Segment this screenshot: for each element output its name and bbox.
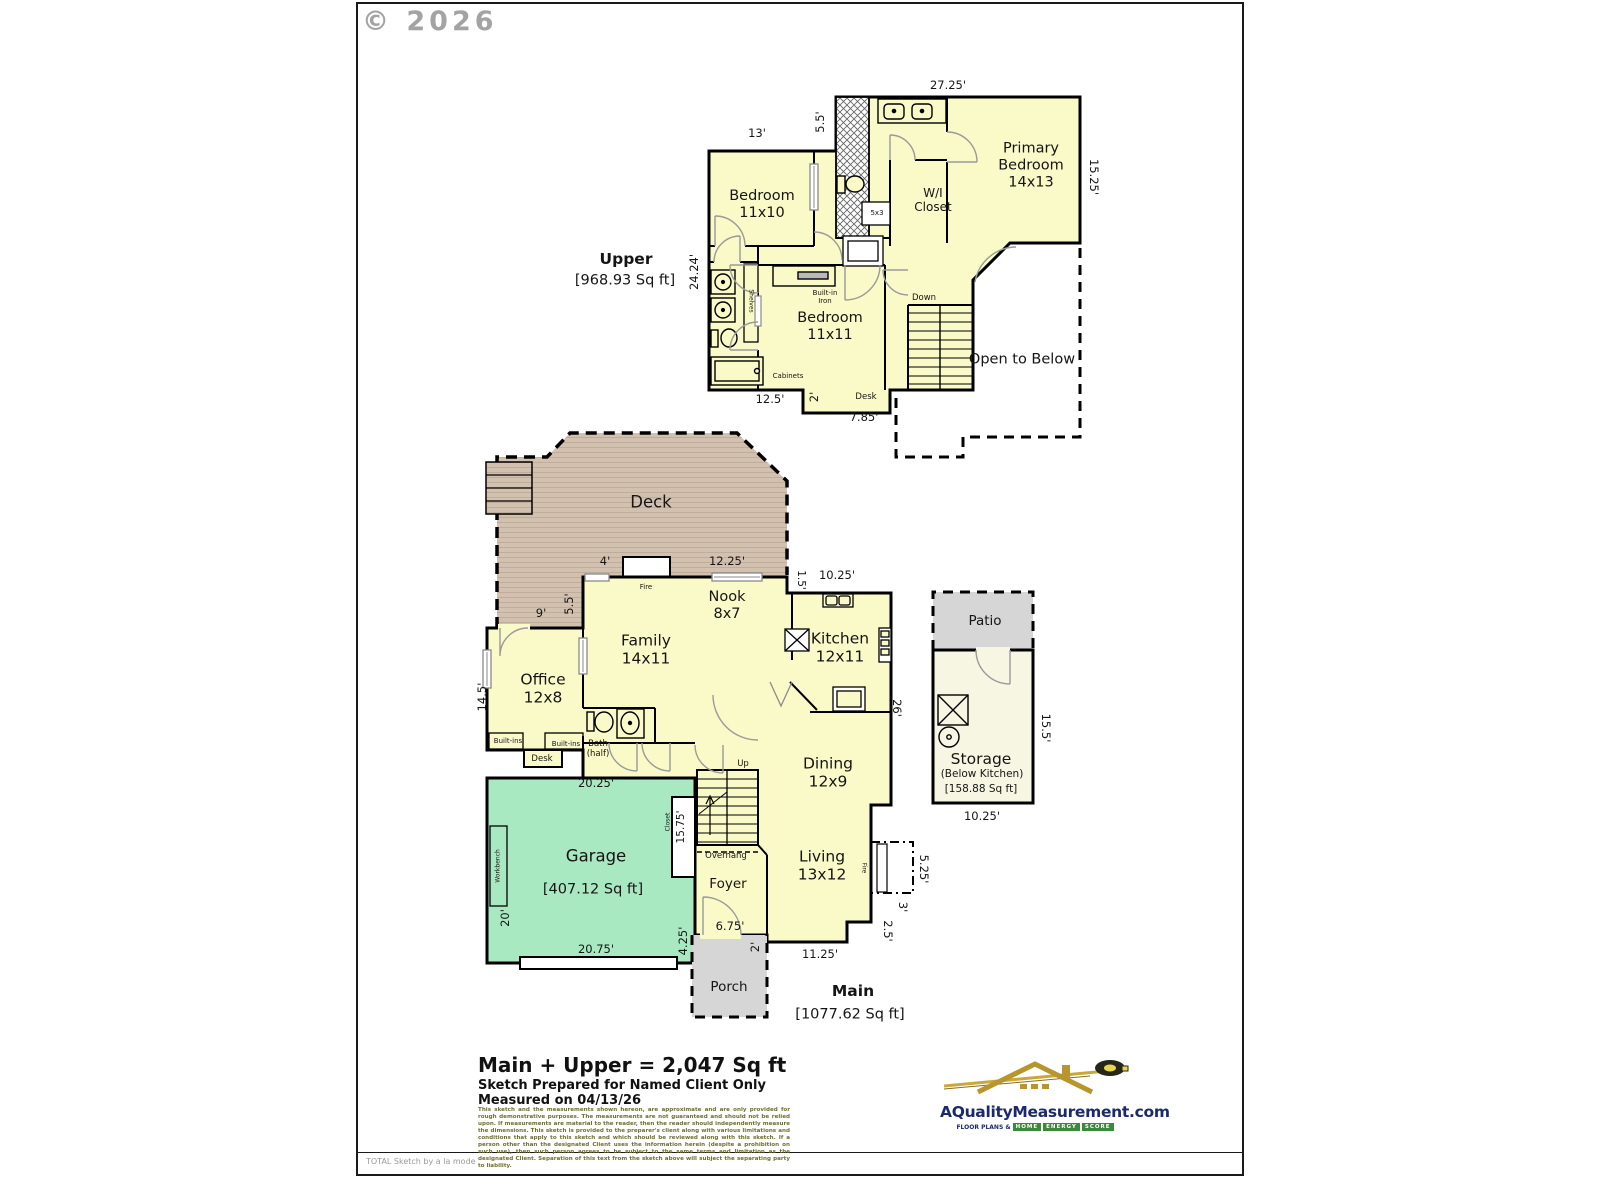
dim-main-right: 26'	[889, 699, 903, 717]
storage-door-gap	[976, 647, 1010, 653]
workbench-label: Workbench	[494, 849, 501, 883]
room-nook: Nook 8x7	[709, 589, 746, 623]
upper-sqft: [968.93 Sq ft]	[575, 272, 675, 289]
room-primary-bedroom: Primary Bedroom 14x13	[998, 140, 1064, 191]
dim-bedroom1-top: 13'	[748, 127, 766, 141]
room-garage: Garage	[566, 846, 626, 865]
measured-on-line: Measured on 04/13/26	[478, 1093, 641, 1108]
shower-size-label: 5x3	[870, 209, 883, 217]
toilet-icon	[587, 712, 594, 731]
dim-garage-top: 20.25'	[578, 777, 614, 791]
dim-living-bottom: 11.25'	[802, 948, 838, 962]
open-to-below-label: Open to Below	[969, 351, 1075, 368]
up-label: Up	[737, 759, 749, 769]
logo-site-text: AQualityMeasurement.com	[940, 1103, 1130, 1121]
down-label: Down	[912, 293, 936, 303]
deck-fireplace-icon	[623, 557, 670, 578]
primary-bath-vanity-icon	[878, 99, 946, 123]
tagline-word-home: HOME	[1013, 1123, 1042, 1131]
built-in-iron-icon	[773, 266, 835, 286]
dim-kitchen-top: 10.25'	[819, 569, 855, 583]
dim-living-jog: 2.5'	[880, 920, 894, 941]
dim-garage-left: 20'	[499, 909, 513, 927]
kitchen-counter-appliance-icon	[833, 687, 865, 711]
room-dining: Dining 12x9	[803, 755, 853, 792]
upper-title: Upper	[600, 250, 653, 268]
tagline-word-score: SCORE	[1082, 1123, 1114, 1131]
dim-upper-left: 24.24'	[688, 254, 702, 290]
dim-deck-door: 4'	[600, 555, 610, 569]
dim-deck-left-w: 9'	[536, 607, 546, 621]
dim-desk-bottom: 7.85'	[850, 411, 879, 425]
room-foyer: Foyer	[709, 877, 746, 893]
main-sqft: [1077.62 Sq ft]	[795, 1006, 904, 1023]
room-porch: Porch	[710, 980, 747, 996]
dim-upper-bottom-left: 12.5'	[756, 393, 785, 407]
overhang-label: Overhang	[705, 851, 747, 861]
range-icon	[879, 628, 891, 662]
deck-stairs-icon	[486, 462, 532, 514]
primary-bath-toilet-icon	[837, 176, 864, 193]
software-credit: TOTAL Sketch by a la mode	[366, 1157, 476, 1166]
dim-kitchen-jog: 1.5'	[795, 570, 807, 590]
dim-desk-jog: 2'	[808, 392, 822, 402]
total-sqft-line: Main + Upper = 2,047 Sq ft	[478, 1053, 786, 1077]
cabinets-label: Cabinets	[773, 372, 804, 380]
dim-upper-top: 27.25'	[930, 79, 966, 93]
tagline-prefix: FLOOR PLANS &	[956, 1124, 1010, 1131]
room-patio: Patio	[968, 614, 1001, 630]
room-family: Family 14x11	[621, 632, 671, 669]
room-deck: Deck	[630, 492, 671, 511]
room-bedroom1: Bedroom 11x10	[729, 188, 795, 222]
dim-garage-bottom: 20.75'	[578, 943, 614, 957]
main-desk-label: Desk	[531, 754, 552, 764]
garage-area	[487, 778, 695, 969]
dim-porch-top: 6.75'	[716, 920, 745, 934]
dim-storage-bottom: 10.25'	[964, 810, 1000, 824]
dim-deck-left-h: 5.5'	[563, 593, 577, 614]
built-ins-label-b: Built-ins	[552, 740, 580, 748]
room-wi-closet: W/I Closet	[914, 186, 951, 214]
closet-label: Closet	[664, 813, 671, 832]
logo-roof-tape-icon	[940, 1056, 1130, 1098]
dim-bath-jog: 5.5'	[814, 111, 828, 132]
dim-fire-h: 5.25'	[916, 855, 930, 884]
upper-desk-label: Desk	[855, 392, 876, 402]
prepared-for-line: Sketch Prepared for Named Client Only	[478, 1078, 766, 1093]
room-bedroom2: Bedroom 11x11	[797, 310, 863, 344]
shelves-label: Shelves	[747, 289, 754, 312]
half-bath-label: Bath (half)	[587, 739, 610, 759]
room-storage: Storage	[951, 750, 1012, 768]
garage-sqft: [407.12 Sq ft]	[543, 881, 643, 898]
dim-upper-right: 15.25'	[1086, 159, 1100, 195]
storage-sqft: [158.88 Sq ft]	[945, 783, 1018, 795]
living-fireplace-icon	[871, 842, 913, 893]
dim-office-left: 14.5'	[476, 683, 490, 712]
main-title: Main	[832, 982, 874, 1000]
dim-porch-side: 2'	[749, 942, 763, 952]
main-stairs-icon	[697, 770, 758, 845]
garage-door-icon	[520, 957, 677, 969]
room-kitchen: Kitchen 12x11	[811, 630, 869, 667]
deck-fire-label: Fire	[640, 583, 653, 591]
built-ins-label-a: Built-ins	[494, 737, 522, 745]
built-in-iron-label: Built-in Iron	[813, 289, 838, 306]
room-office: Office 12x8	[520, 671, 565, 708]
storage-sub-label: (Below Kitchen)	[941, 768, 1024, 780]
kitchen-island-icon	[785, 629, 809, 651]
dim-deck-right: 12.25'	[709, 555, 745, 569]
living-fire-label: Fire	[860, 863, 867, 874]
tagline-word-energy: ENERGY	[1043, 1123, 1080, 1131]
room-living: Living 13x12	[798, 848, 847, 885]
floor-plan-page: © 2026	[0, 0, 1600, 1200]
logo-tagline: FLOOR PLANS & HOME ENERGY SCORE	[940, 1123, 1130, 1131]
disclaimer-text: This sketch and the measurements shown h…	[478, 1107, 790, 1170]
dim-storage-right: 15.5'	[1038, 714, 1052, 743]
dim-porch-jog: 4.25'	[677, 927, 691, 956]
dim-closet-h: 15.75'	[675, 811, 687, 844]
dim-fire-side: 3'	[895, 902, 909, 912]
company-logo: AQualityMeasurement.com FLOOR PLANS & HO…	[940, 1056, 1130, 1131]
